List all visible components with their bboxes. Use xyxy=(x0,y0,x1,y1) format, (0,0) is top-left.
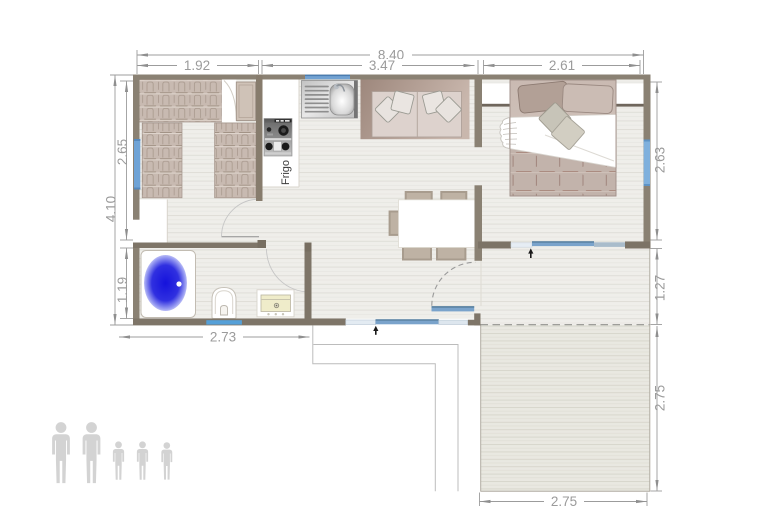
svg-text:2.73: 2.73 xyxy=(210,330,236,345)
svg-text:2.61: 2.61 xyxy=(549,58,575,73)
svg-text:2.65: 2.65 xyxy=(115,139,130,165)
svg-text:Frigo: Frigo xyxy=(280,160,292,185)
svg-text:4.10: 4.10 xyxy=(104,196,119,222)
svg-text:2.63: 2.63 xyxy=(653,147,668,173)
svg-text:1.27: 1.27 xyxy=(653,275,668,301)
svg-text:1.19: 1.19 xyxy=(115,277,130,303)
svg-text:2.75: 2.75 xyxy=(653,385,668,411)
svg-text:2.75: 2.75 xyxy=(551,494,577,509)
svg-text:3.47: 3.47 xyxy=(369,58,395,73)
svg-text:1.92: 1.92 xyxy=(184,58,210,73)
